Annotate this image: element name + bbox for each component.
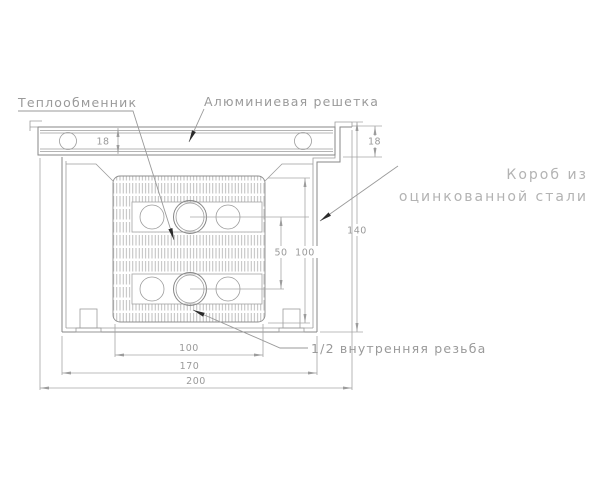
support-foot-right [279, 309, 304, 332]
dim-pipe-spacing: 50 [274, 248, 287, 259]
box-inner-chamfer-right [265, 164, 313, 181]
dim-grille-height: 18 [96, 137, 109, 148]
dim-box-width: 170 [180, 361, 200, 372]
leader-aluminum-grille [189, 109, 204, 142]
grille-hole-right [295, 133, 312, 150]
box-inner-chamfer-left [66, 164, 113, 181]
grille-left-hook [30, 121, 42, 131]
grille-hole-left [60, 133, 77, 150]
label-heat-exchanger: Теплообменник [17, 95, 137, 110]
dim-upstand-height: 18 [368, 137, 381, 148]
convector-section-drawing: 18 18 50 100 140 100 170 200 Т [0, 0, 600, 480]
label-steel-box-line2: оцинкованной стали [399, 189, 588, 205]
label-aluminum-grille: Алюминиевая решетка [204, 94, 379, 109]
dim-overall-height: 140 [347, 226, 367, 237]
aluminum-grille [30, 121, 335, 155]
grille-profile-lines [40, 131, 333, 152]
dim-overall-width: 200 [186, 376, 206, 387]
dim-core-width: 100 [179, 343, 199, 354]
leader-steel-box [320, 166, 398, 221]
technical-drawing-page: 18 18 50 100 140 100 170 200 Т [0, 0, 600, 480]
dim-core-height: 100 [295, 248, 315, 259]
label-steel-box-line1: Короб из [506, 167, 588, 183]
label-internal-thread: 1/2 внутренняя резьба [311, 341, 487, 356]
support-foot-left [76, 309, 101, 332]
